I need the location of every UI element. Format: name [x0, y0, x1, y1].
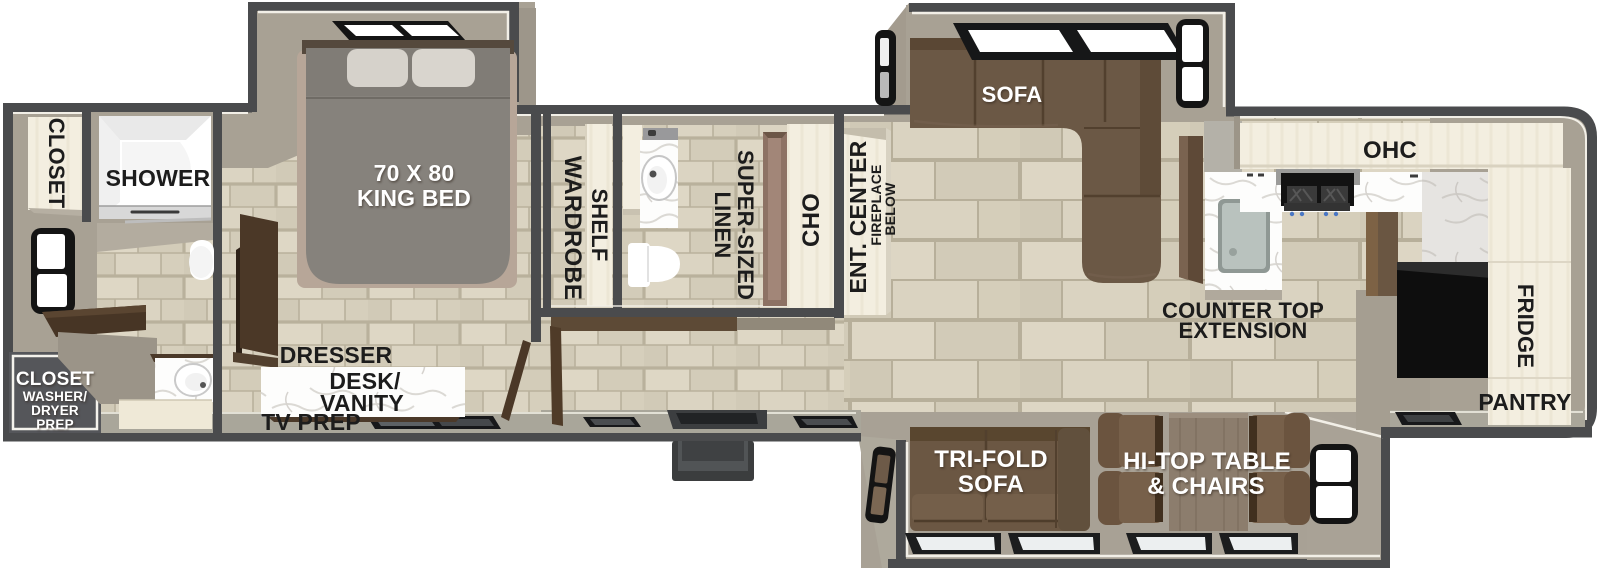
svg-text:HI-TOP TABLE: HI-TOP TABLE [1123, 448, 1291, 475]
svg-text:SOFA: SOFA [958, 471, 1024, 498]
svg-text:SOFA: SOFA [982, 82, 1043, 107]
svg-text:SHELF: SHELF [587, 188, 612, 261]
svg-text:70 X 80: 70 X 80 [374, 160, 455, 186]
svg-text:BELOW: BELOW [882, 182, 898, 236]
svg-text:OHC: OHC [1363, 137, 1417, 164]
svg-text:DRYER: DRYER [31, 403, 79, 418]
svg-text:SHOWER: SHOWER [106, 165, 211, 191]
svg-text:SUPER-SIZED: SUPER-SIZED [733, 150, 758, 300]
svg-text:WASHER/: WASHER/ [23, 389, 87, 404]
svg-text:KING BED: KING BED [357, 185, 471, 211]
svg-text:DRESSER: DRESSER [280, 342, 393, 368]
svg-text:EXTENSION: EXTENSION [1179, 318, 1308, 343]
svg-text:FRIDGE: FRIDGE [1513, 284, 1538, 368]
svg-text:TV PREP: TV PREP [261, 409, 361, 435]
svg-text:CLOSET: CLOSET [16, 369, 94, 390]
svg-text:CLOSET: CLOSET [44, 118, 69, 209]
svg-text:PANTRY: PANTRY [1478, 389, 1571, 415]
svg-text:LINEN: LINEN [710, 192, 735, 259]
svg-text:CHO: CHO [798, 193, 825, 247]
svg-text:WARDROBE: WARDROBE [559, 156, 586, 300]
svg-text:PREP: PREP [36, 417, 74, 432]
svg-text:TRI-FOLD: TRI-FOLD [934, 446, 1048, 473]
svg-text:& CHAIRS: & CHAIRS [1147, 473, 1265, 500]
